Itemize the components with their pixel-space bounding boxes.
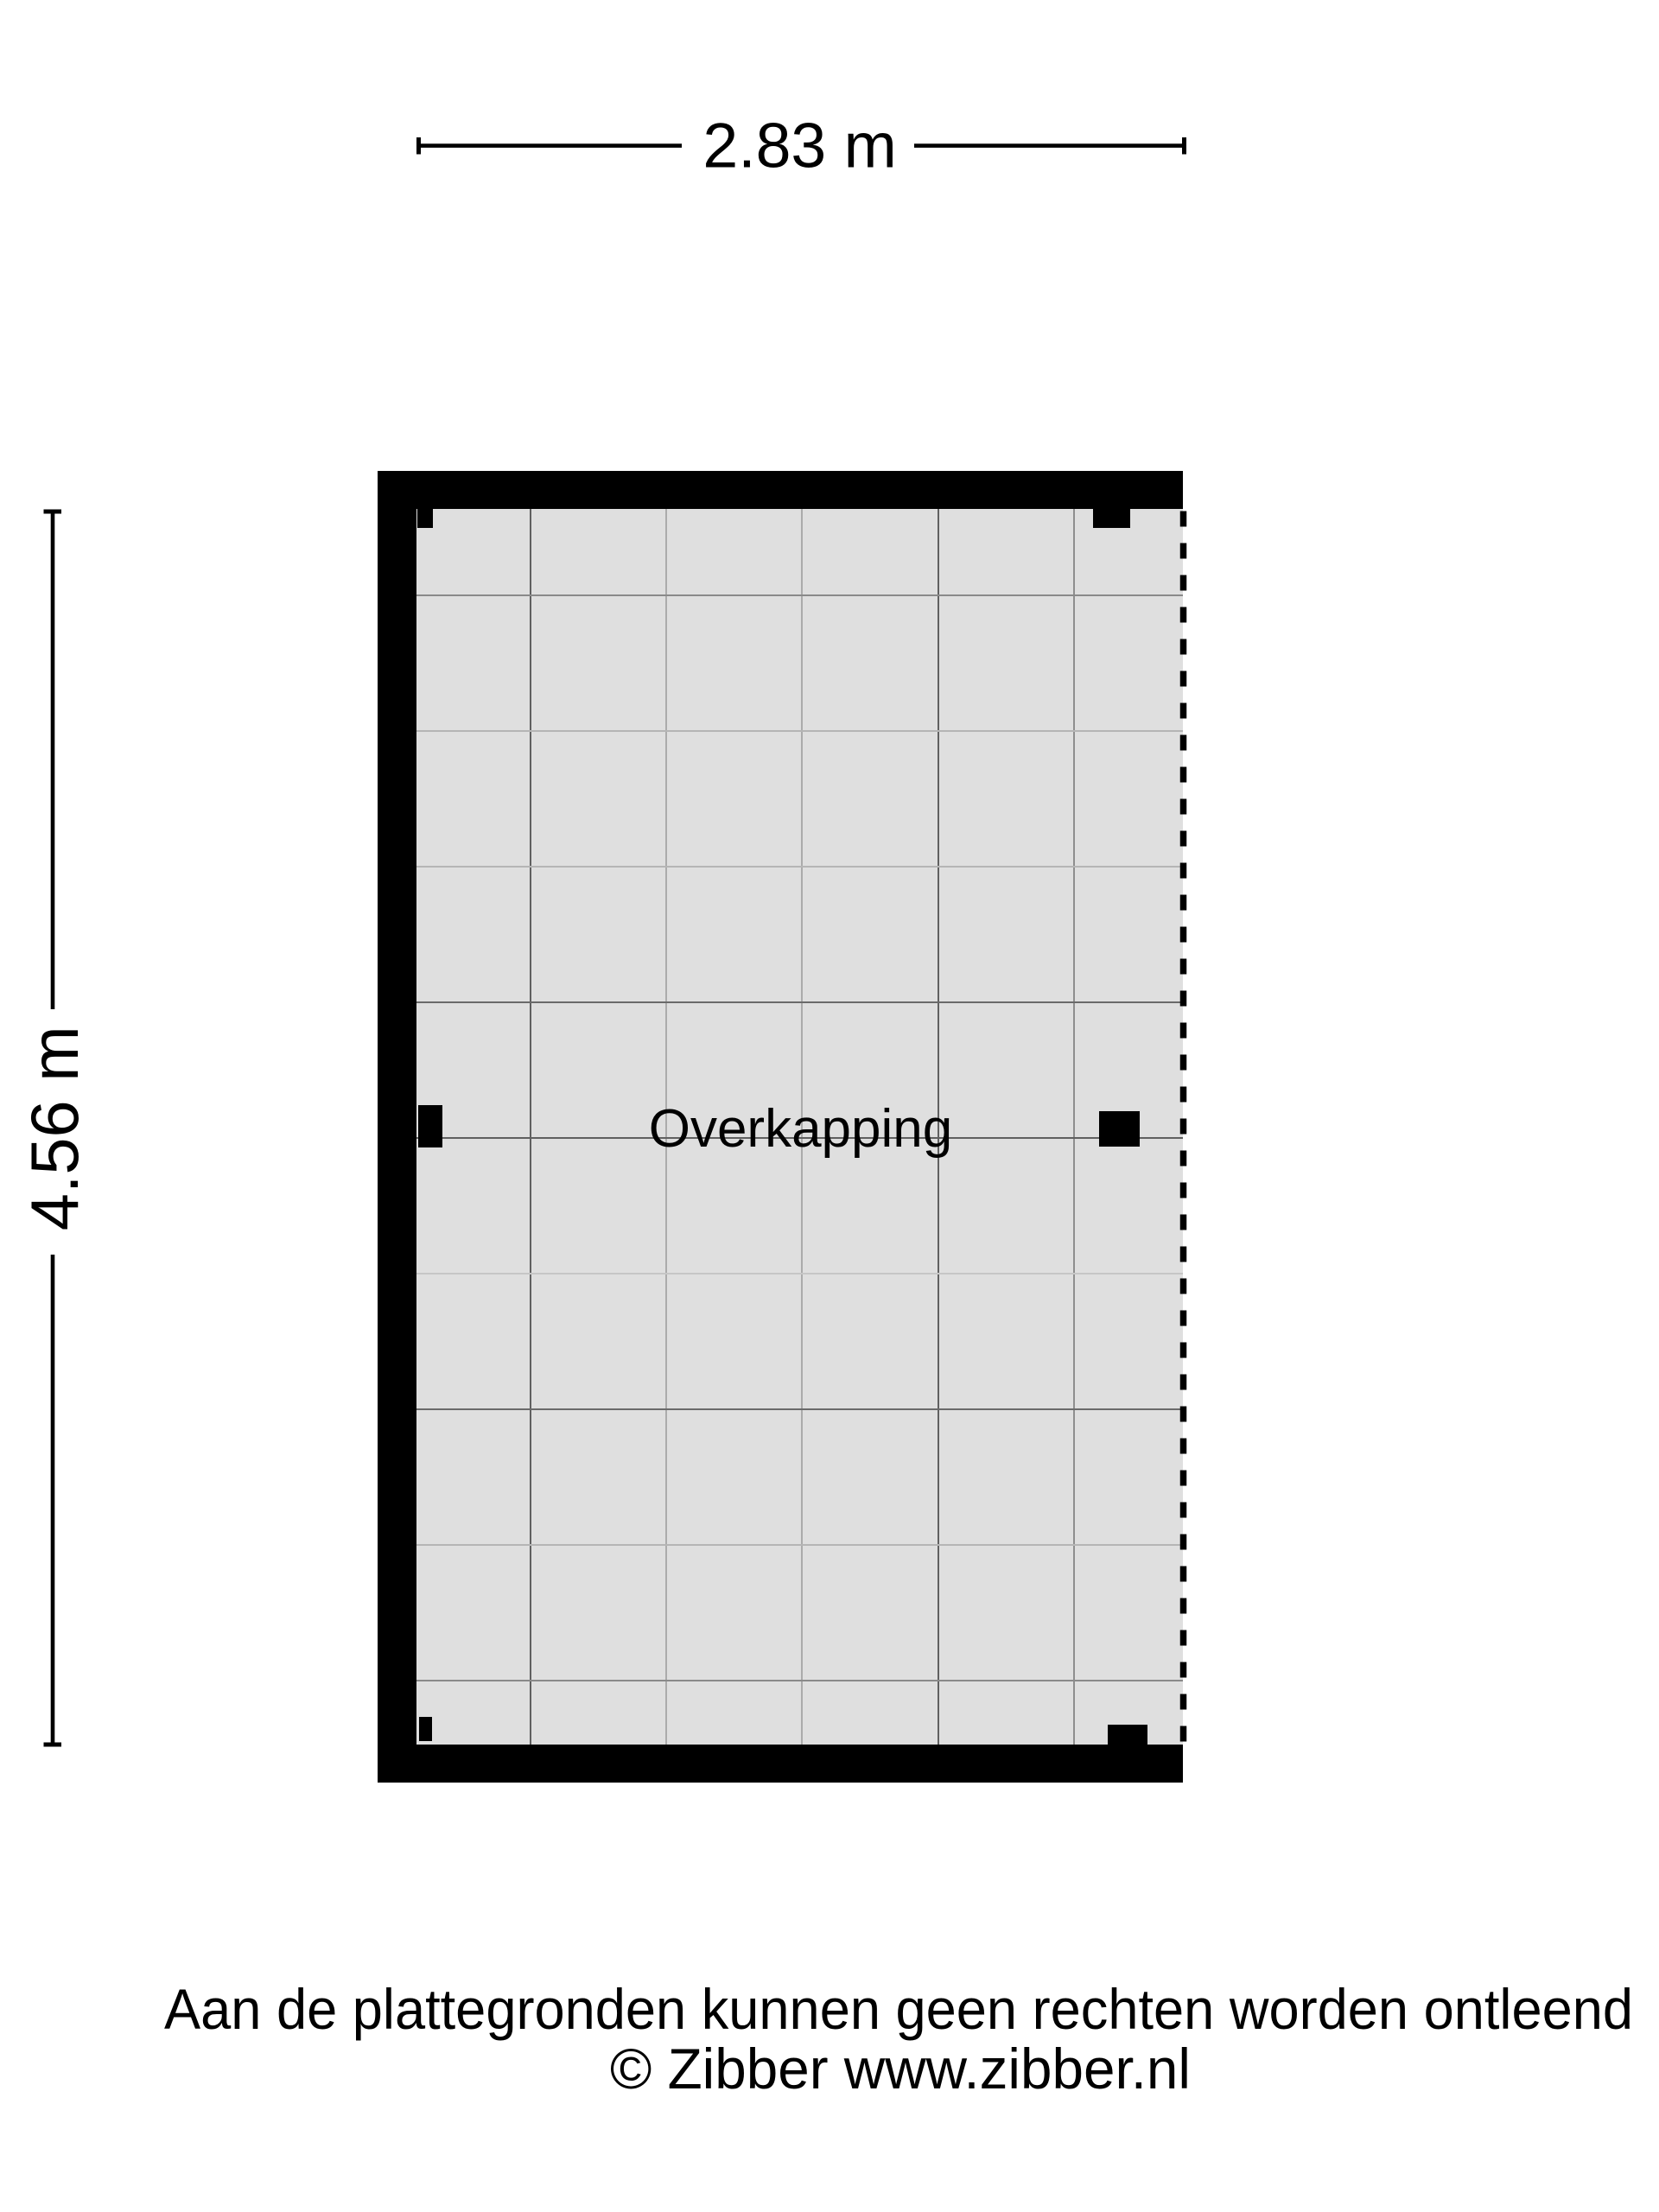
svg-text:Aan de plattegronden kunnen ge: Aan de plattegronden kunnen geen rechten… (164, 1977, 1633, 2041)
svg-text:© Zibber www.zibber.nl: © Zibber www.zibber.nl (610, 2037, 1191, 2101)
svg-text:4.56 m: 4.56 m (18, 1026, 92, 1230)
svg-text:Overkapping: Overkapping (649, 1099, 953, 1159)
svg-text:2.83 m: 2.83 m (702, 110, 896, 181)
